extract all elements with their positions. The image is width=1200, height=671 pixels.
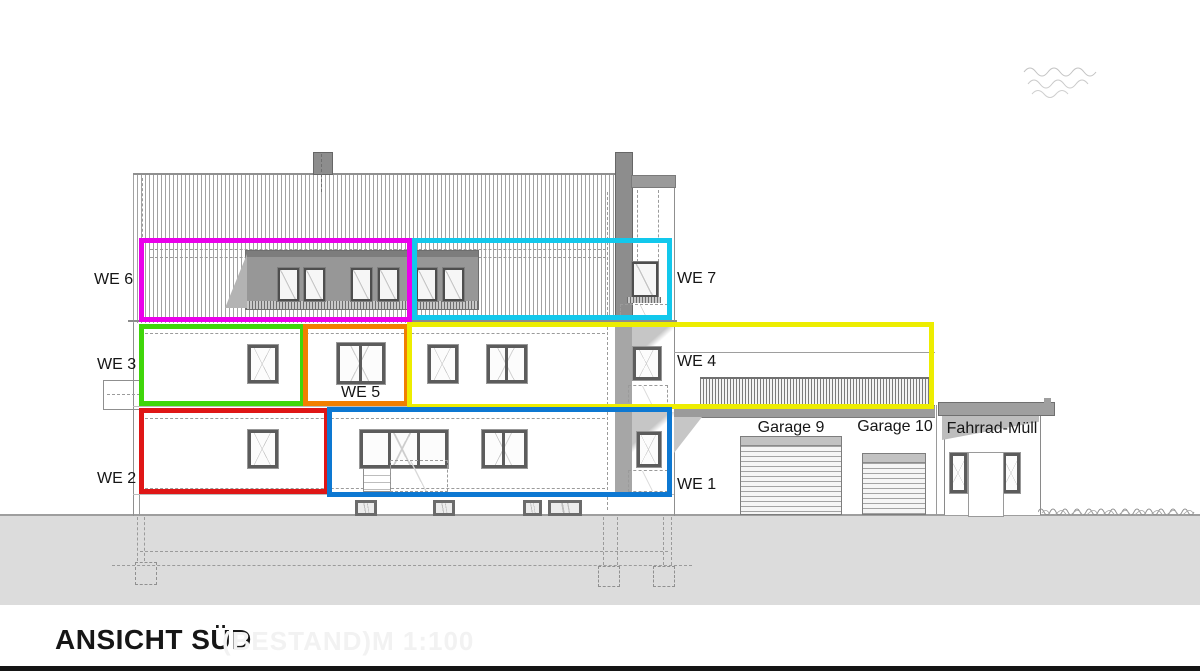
chimney [313,152,333,175]
canopy-dash [107,394,140,395]
unit-overlay-we2[interactable] [139,408,329,494]
basement-window [355,500,377,516]
garage10-label: Garage 10 [850,418,940,435]
unit-label-we7: WE 7 [677,270,716,287]
unit-label-we6: WE 6 [94,271,133,288]
unit-overlay-we3[interactable] [139,324,305,406]
chimney-dash [321,154,322,192]
window [950,453,967,493]
basement-window [523,500,542,516]
basement-window [433,500,455,516]
unit-label-we1: WE 1 [677,476,716,493]
canopy-outline [103,380,142,410]
drawing-scale-faint: M 1:100 [372,626,474,657]
unit-overlay-we4[interactable] [407,322,934,409]
unit-label-we5: WE 5 [341,384,380,401]
foundation-dash [144,517,145,561]
garage9-label: Garage 9 [740,419,842,436]
ground-band [0,516,1200,605]
grass-scribble [1038,502,1195,515]
foundation-dash [603,517,604,565]
foundation-dash [663,517,664,565]
unit-label-we4: WE 4 [677,353,716,370]
elevation-sheet: Garage 9 Garage 10 Fahrrad-Müll WE 6 WE … [0,0,1200,671]
unit-overlay-we1[interactable] [327,407,672,497]
shed-door [968,452,1004,517]
footing-box [653,566,675,587]
footing-box [598,566,620,587]
foundation-dash [617,517,618,565]
foundation-dash [140,551,668,552]
terrain-scribble [1022,60,1098,98]
basement-edge [139,495,140,516]
roof-bar [631,175,676,188]
foundation-dash [671,517,672,565]
foundation-dash [137,517,138,561]
garage-door-10 [862,453,926,515]
basement-window [548,500,582,516]
unit-overlay-we6[interactable] [139,238,412,322]
sheet-bottom-rule [0,666,1200,671]
unit-label-we3: WE 3 [97,356,136,373]
unit-overlay-we7[interactable] [412,238,672,320]
shed-label: Fahrrad-Müll [944,420,1040,437]
footing-box [135,562,157,585]
garage-door-header [741,437,841,446]
drawing-status-faint: (BESTAND) [222,626,372,657]
window [1003,453,1020,493]
unit-label-we2: WE 2 [97,470,136,487]
shed-roof-vent [1044,398,1051,403]
garage-door-header [863,454,925,463]
garage-wall-wedge [674,417,702,453]
garage-door-9 [740,436,842,515]
shed-roof [938,402,1055,416]
